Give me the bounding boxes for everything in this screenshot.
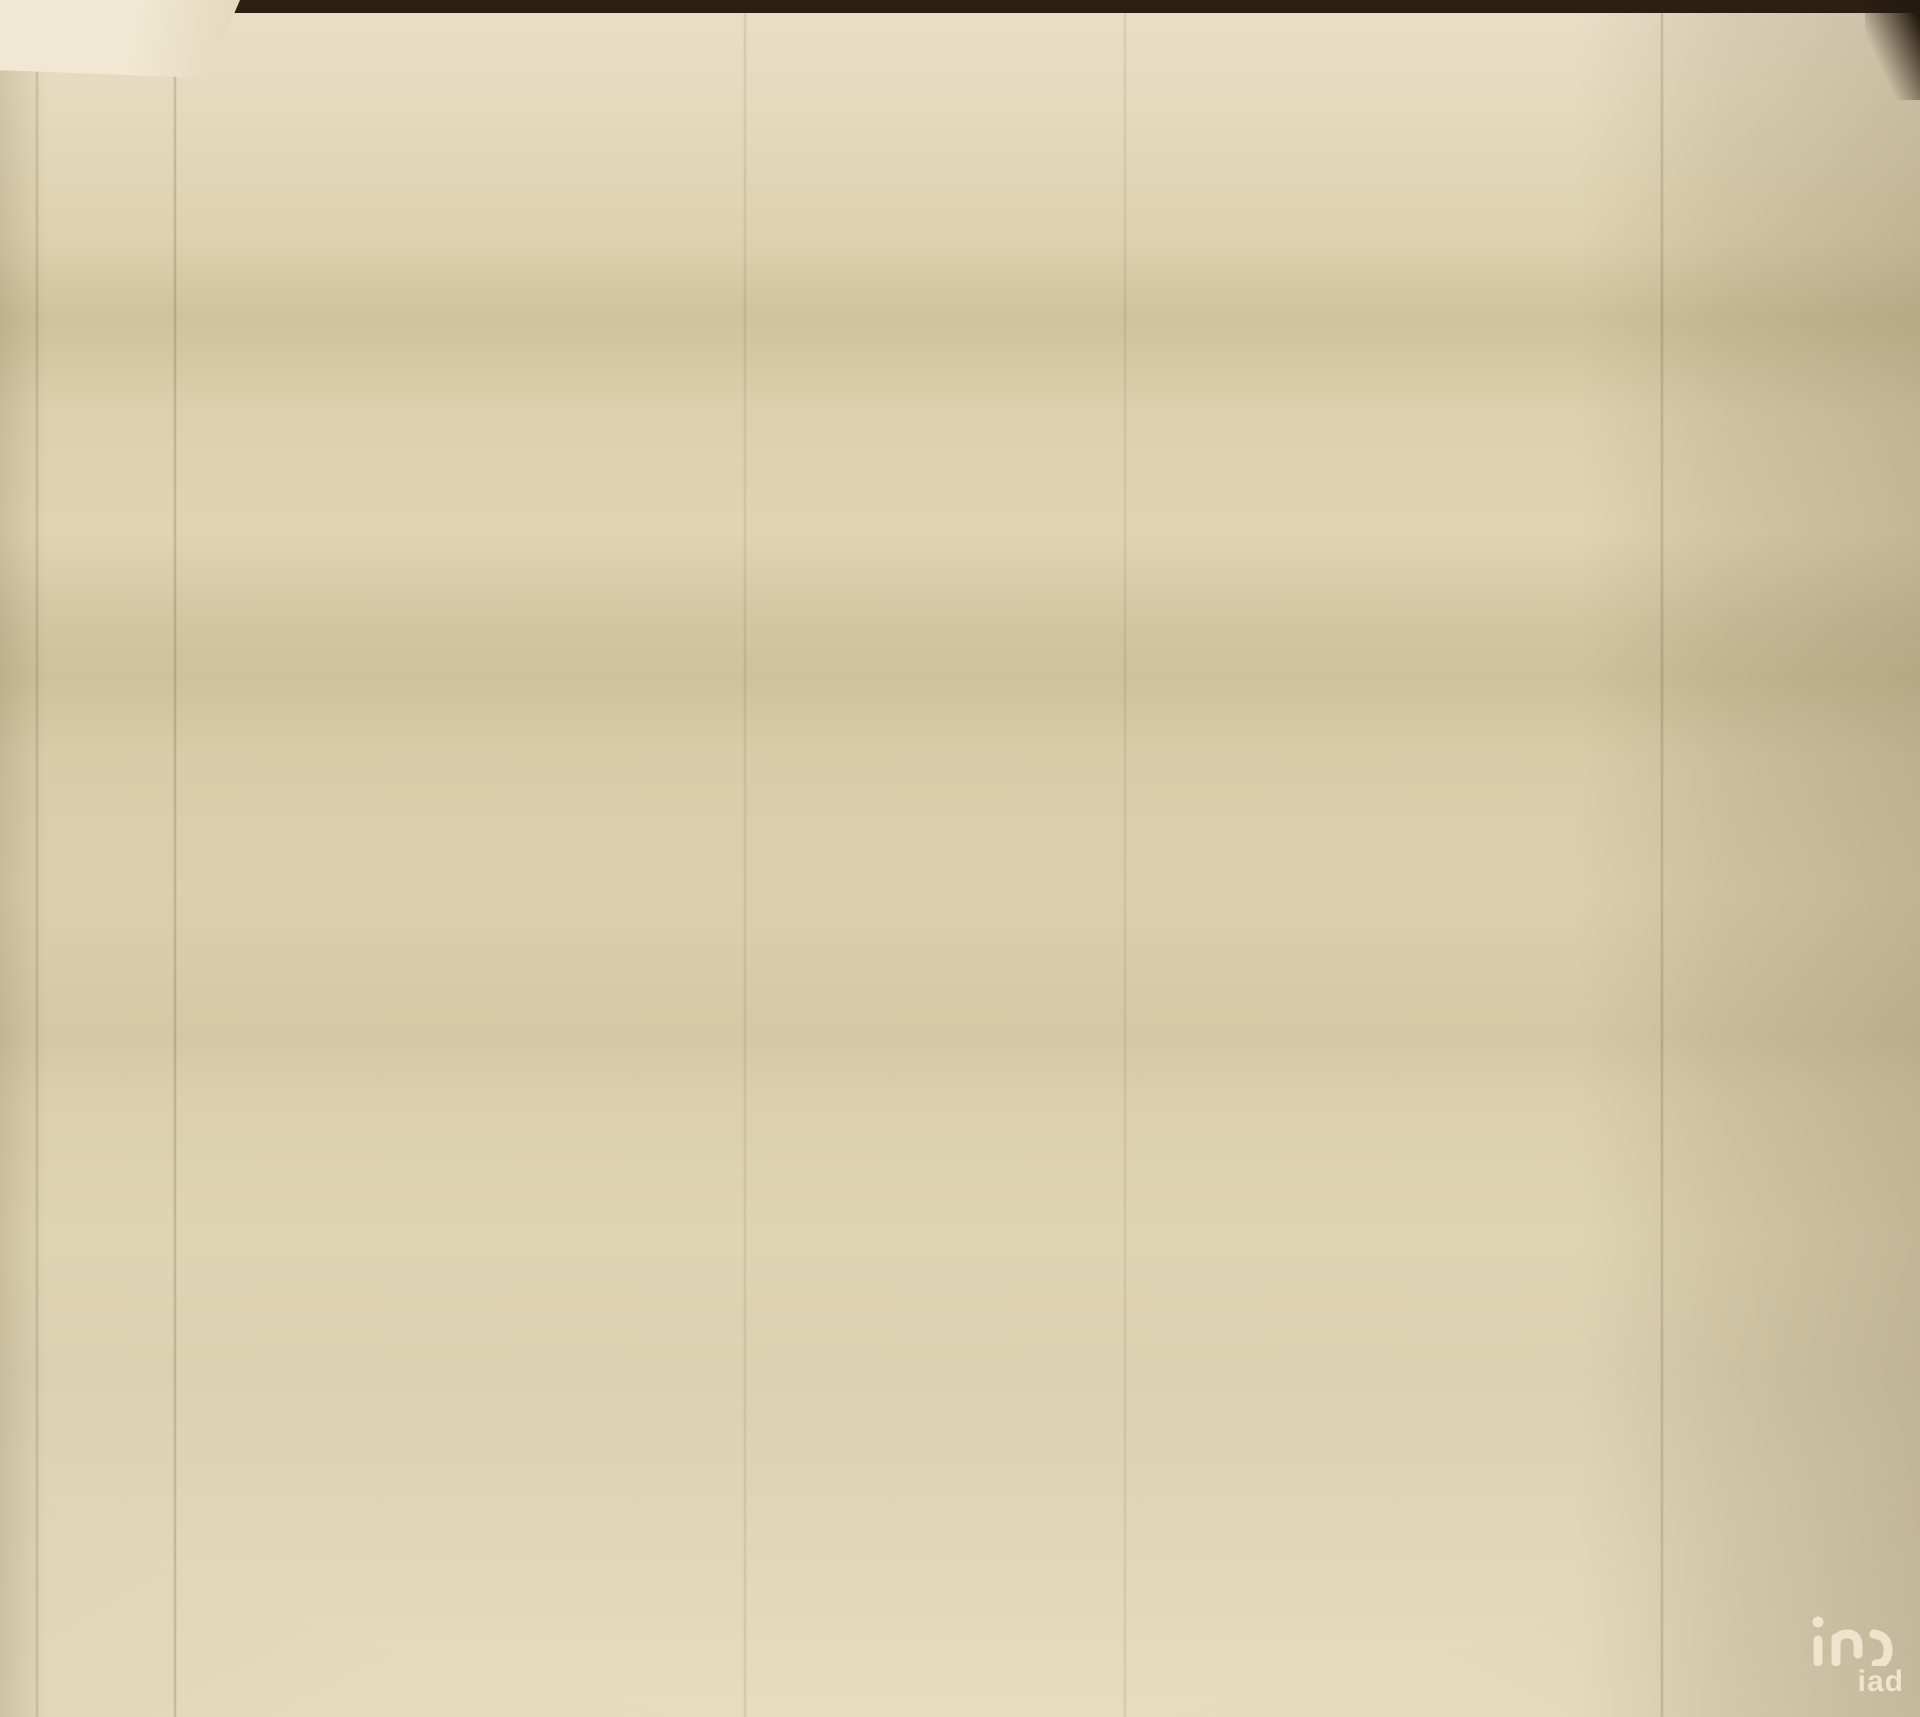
iad-watermark-text: iad [1784, 1665, 1904, 1699]
paper-fold-line [1123, 0, 1127, 1717]
floor-plan-photo: 12.852.204.452.202.251.750.750.550.901.1… [0, 0, 1920, 1717]
paper-fold-line [743, 0, 747, 1717]
aged-paper-background [0, 0, 1920, 1717]
paper-fold-line [35, 0, 39, 1717]
photo-dark-corner [1865, 0, 1920, 100]
paper-fold-line [173, 0, 177, 1717]
iad-glyph-icon [1808, 1602, 1904, 1666]
photo-background-strip [0, 0, 1920, 13]
paper-corner-fold [0, 0, 240, 78]
iad-watermark-logo: iad [1784, 1602, 1904, 1699]
paper-fold-line [1660, 0, 1664, 1717]
